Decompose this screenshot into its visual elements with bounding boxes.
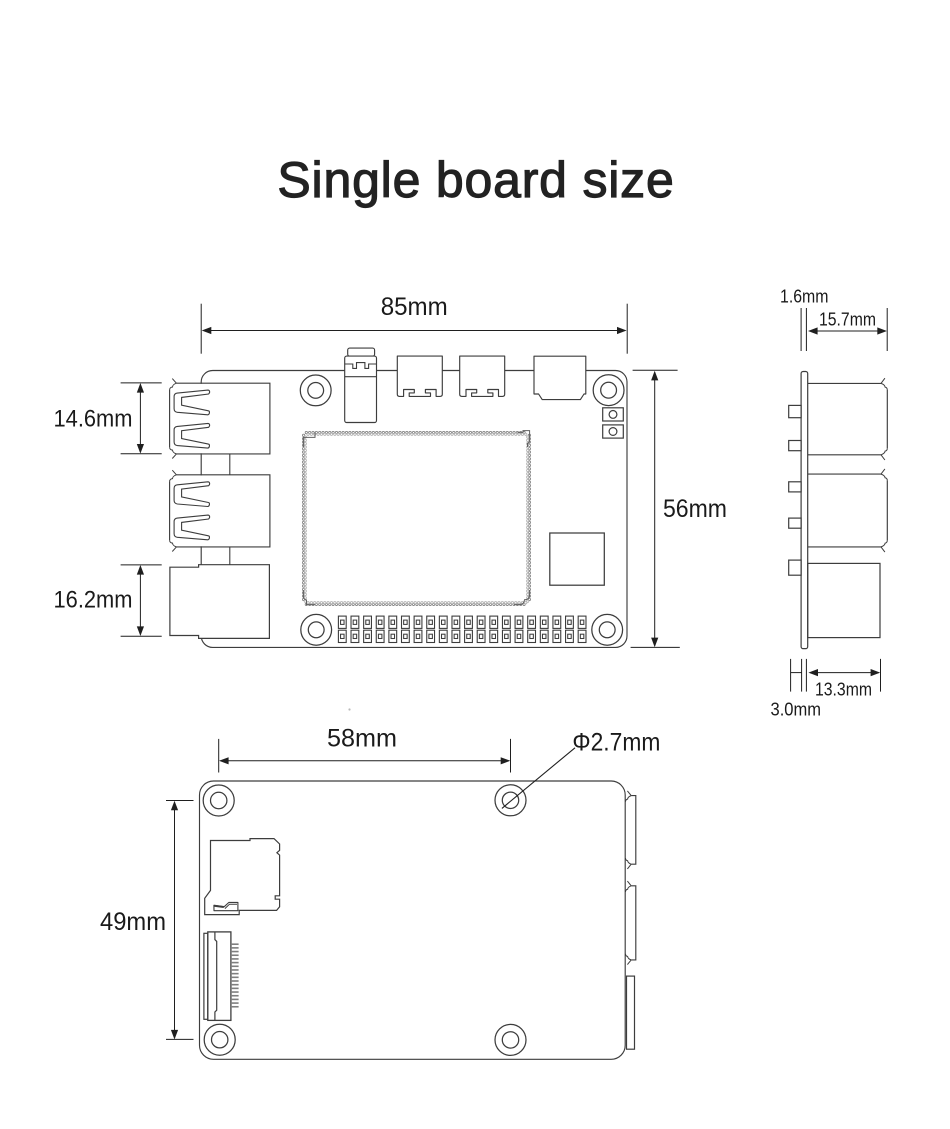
svg-text:85mm: 85mm — [381, 293, 448, 321]
svg-text:Single board size: Single board size — [277, 152, 674, 208]
svg-text:15.7mm: 15.7mm — [819, 309, 876, 329]
svg-text:58mm: 58mm — [327, 725, 397, 753]
svg-text:16.2mm: 16.2mm — [54, 587, 133, 614]
svg-text:1.6mm: 1.6mm — [780, 286, 829, 306]
svg-text:14.6mm: 14.6mm — [54, 406, 133, 433]
svg-text:Φ2.7mm: Φ2.7mm — [572, 729, 660, 757]
svg-text:3.0mm: 3.0mm — [771, 700, 822, 720]
svg-text:56mm: 56mm — [663, 495, 727, 523]
svg-text:49mm: 49mm — [100, 908, 166, 936]
svg-text:13.3mm: 13.3mm — [815, 680, 872, 700]
